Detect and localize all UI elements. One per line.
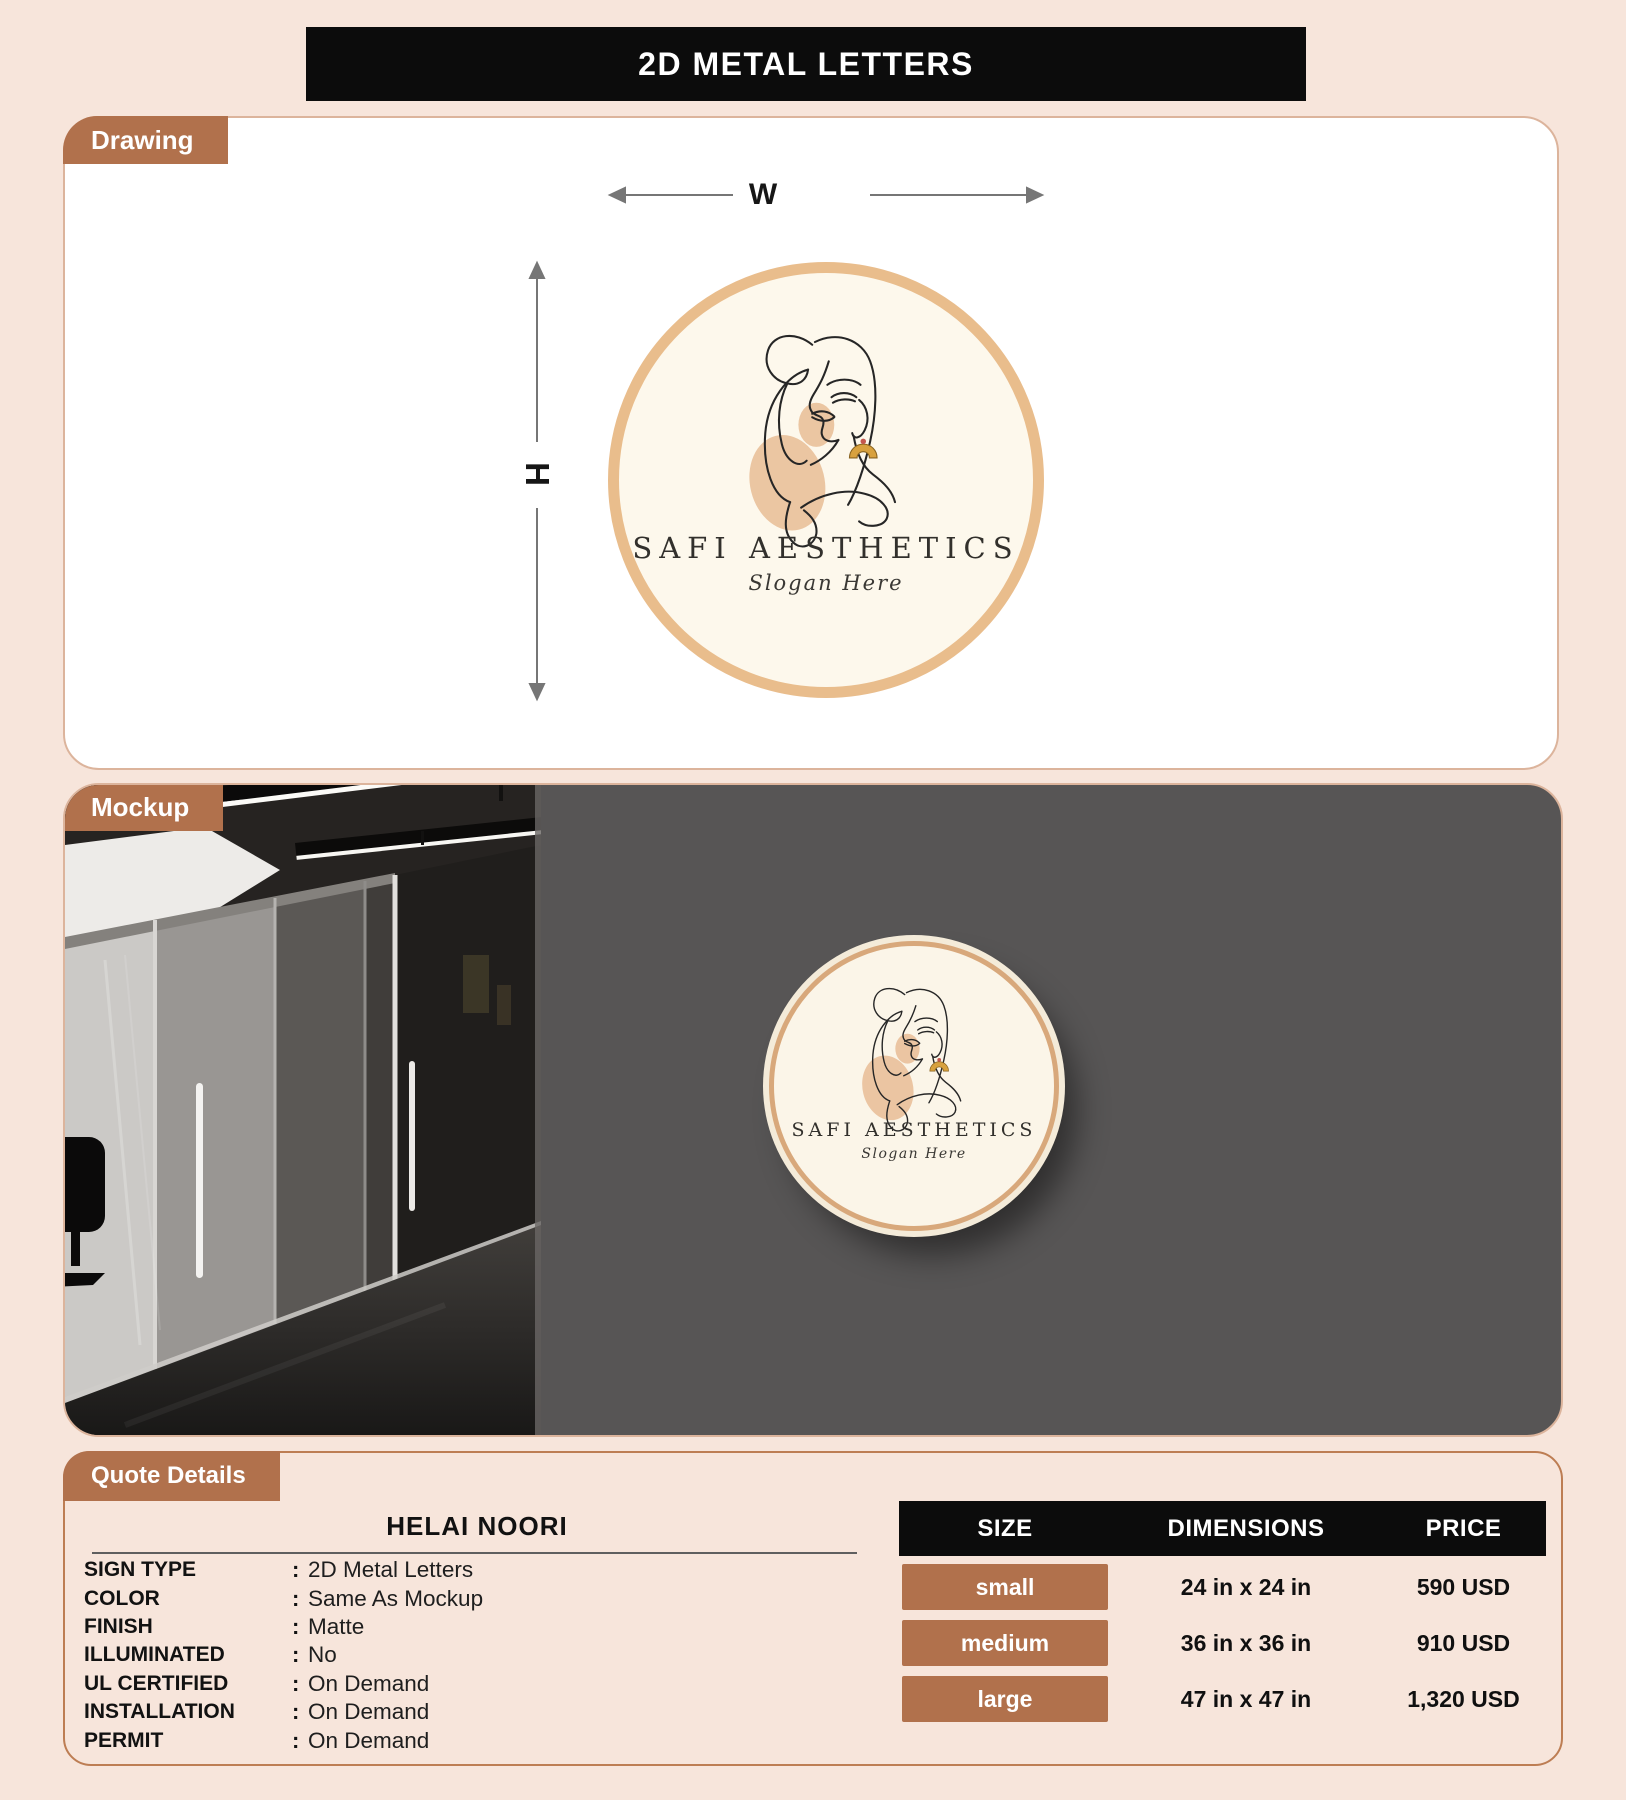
door-handle-icon [409,1061,415,1211]
column-header-dimensions: DIMENSIONS [1111,1515,1381,1543]
brand-text: SAFI AESTHETICS [774,1121,1054,1140]
width-arrow-right [1027,188,1042,202]
logo-artwork [774,946,1054,1226]
dimensions-value: 47 in x 47 in [1111,1686,1381,1713]
spec-value: On Demand [308,1671,429,1697]
spec-value: Matte [308,1614,364,1640]
price-table-row: small 24 in x 24 in 590 USD [899,1564,1546,1610]
brand-text: SAFI AESTHETICS [619,534,1033,563]
spec-label: PERMIT [84,1729,292,1753]
spec-value: On Demand [308,1728,429,1754]
price-value: 590 USD [1381,1574,1546,1601]
dimensions-value: 36 in x 36 in [1111,1630,1381,1657]
width-dimension-label: W [733,173,793,217]
price-table-row: large 47 in x 47 in 1,320 USD [899,1676,1546,1722]
height-arrow-top [530,263,544,278]
logo-sign-drawing: SAFI AESTHETICS Slogan Here [608,262,1044,698]
logo-artwork [619,273,1033,687]
price-table-header: SIZE DIMENSIONS PRICE [899,1501,1546,1556]
width-arrow-left [610,188,625,202]
spec-label: FINISH [84,1615,292,1639]
office-interior-photo [65,785,541,1435]
drawing-tab: Drawing [63,116,228,164]
spec-row: INSTALLATION : On Demand [84,1698,884,1726]
height-dimension-label: H [515,444,559,504]
slogan-text: Slogan Here [619,573,1033,594]
spec-value: Same As Mockup [308,1586,483,1612]
spec-row: COLOR : Same As Mockup [84,1584,884,1612]
price-table-row: medium 36 in x 36 in 910 USD [899,1620,1546,1666]
door-handle-icon [196,1083,203,1278]
spec-row: SIGN TYPE : 2D Metal Letters [84,1556,884,1584]
price-value: 1,320 USD [1381,1686,1546,1713]
size-badge: small [902,1564,1108,1610]
mockup-section: Mockup SAFI AESTHETICS Slogan Here [63,783,1563,1437]
divider [92,1552,857,1554]
spec-label: ILLUMINATED [84,1643,292,1667]
spec-value: No [308,1642,337,1668]
mockup-tab: Mockup [63,783,223,831]
size-badge: large [902,1676,1108,1722]
spec-row: UL CERTIFIED : On Demand [84,1670,884,1698]
spec-row: PERMIT : On Demand [84,1726,884,1754]
height-arrow-bottom [530,684,544,699]
drawing-section: Drawing W H SAFI AESTHETICS Slogan Here [63,116,1559,770]
spec-list: SIGN TYPE : 2D Metal Letters COLOR : Sam… [84,1556,884,1755]
page-title: 2D METAL LETTERS [306,27,1306,101]
logo-sign-mockup: SAFI AESTHETICS Slogan Here [769,941,1059,1231]
quote-details-tab: Quote Details [63,1451,280,1501]
spec-row: ILLUMINATED : No [84,1641,884,1669]
spec-value: 2D Metal Letters [308,1557,473,1583]
spec-label: COLOR [84,1587,292,1611]
price-value: 910 USD [1381,1630,1546,1657]
customer-name: HELAI NOORI [92,1511,862,1542]
spec-row: FINISH : Matte [84,1613,884,1641]
size-badge: medium [902,1620,1108,1666]
spec-label: SIGN TYPE [84,1558,292,1582]
slogan-text: Slogan Here [774,1147,1054,1161]
spec-value: On Demand [308,1699,429,1725]
dimensions-value: 24 in x 24 in [1111,1574,1381,1601]
spec-label: UL CERTIFIED [84,1672,292,1696]
spec-label: INSTALLATION [84,1700,292,1724]
column-header-price: PRICE [1381,1515,1546,1543]
column-header-size: SIZE [899,1515,1111,1543]
quote-details-section: Quote Details HELAI NOORI SIGN TYPE : 2D… [63,1451,1563,1766]
